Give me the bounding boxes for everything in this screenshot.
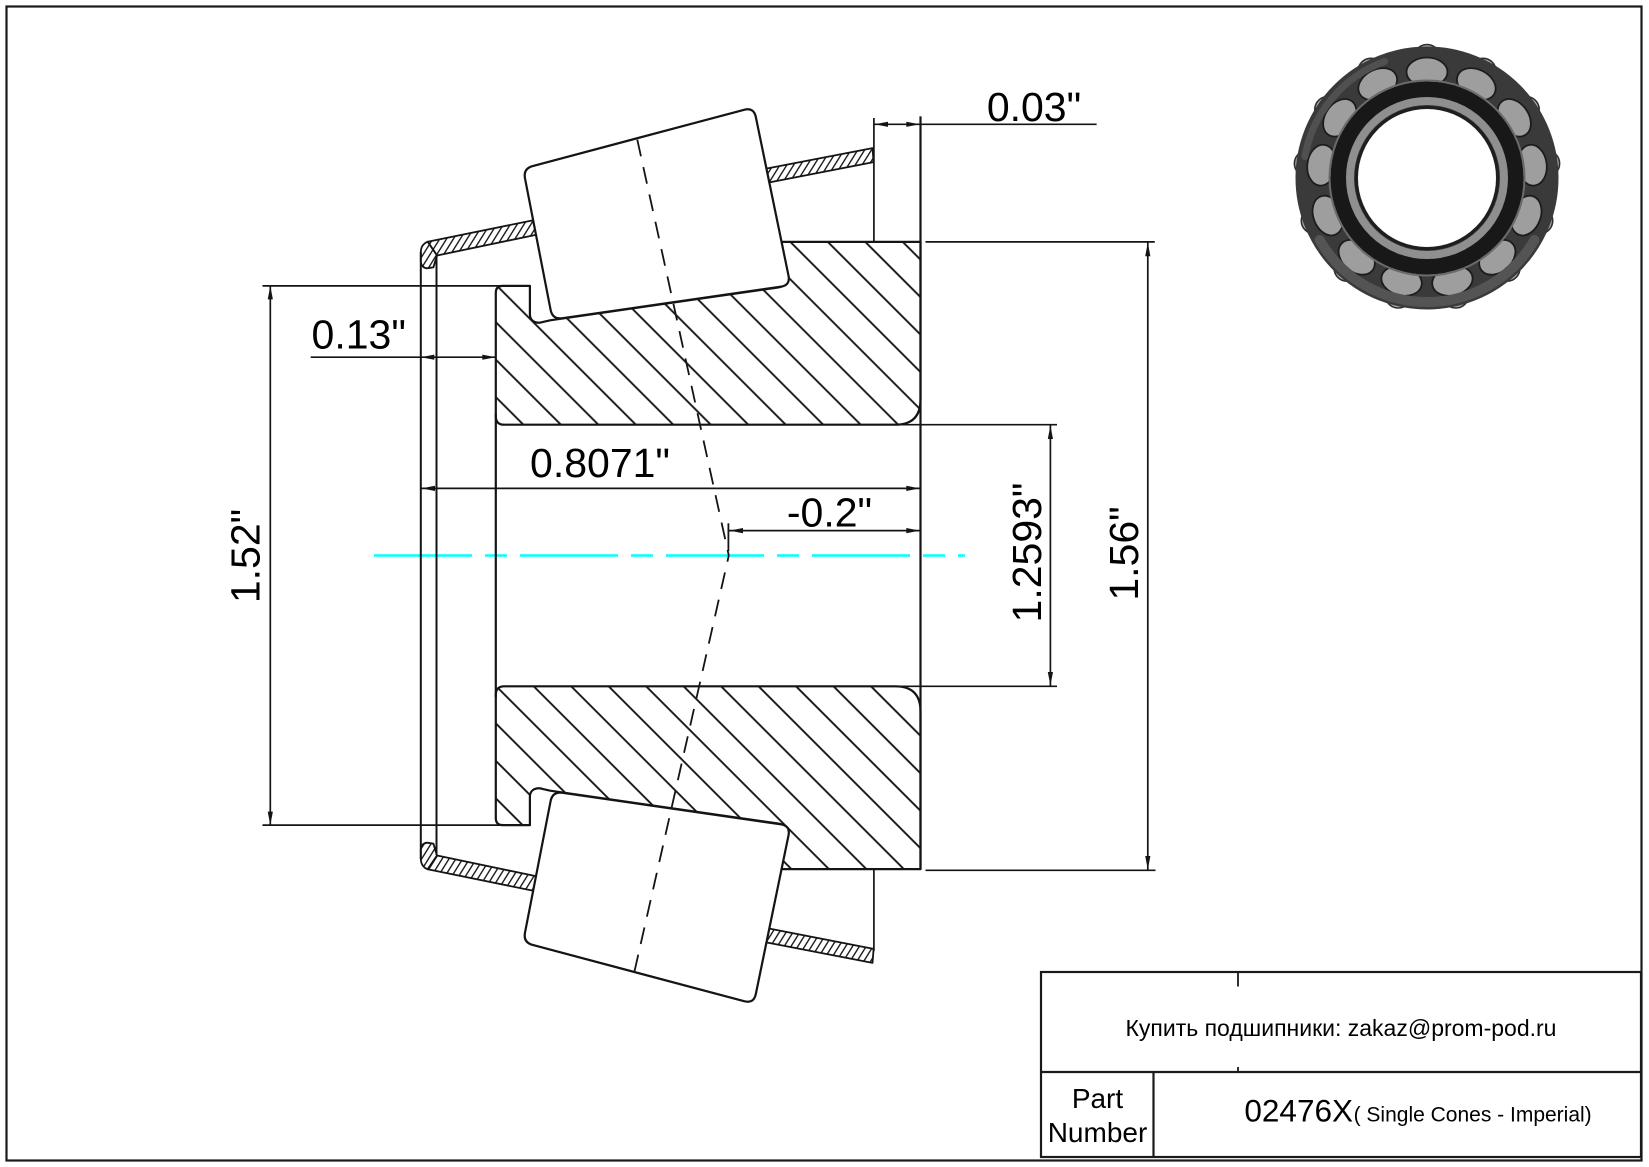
svg-text:1.2593": 1.2593": [1004, 483, 1050, 623]
svg-text:1.52": 1.52": [223, 509, 269, 603]
svg-text:Number: Number: [1048, 1117, 1148, 1148]
svg-text:0.13": 0.13": [312, 312, 406, 358]
svg-text:-0.2": -0.2": [787, 490, 872, 536]
svg-text:( Single Cones - Imperial): ( Single Cones - Imperial): [1354, 1103, 1592, 1126]
svg-text:0.03": 0.03": [987, 84, 1081, 130]
svg-text:Part: Part: [1072, 1083, 1124, 1114]
svg-text:Купить подшипники: zakaz@prom-: Купить подшипники: zakaz@prom-pod.ru: [1126, 1015, 1557, 1041]
svg-text:0.8071": 0.8071": [530, 440, 670, 486]
svg-text:02476X: 02476X: [1244, 1092, 1353, 1128]
svg-text:1.56": 1.56": [1101, 506, 1147, 600]
